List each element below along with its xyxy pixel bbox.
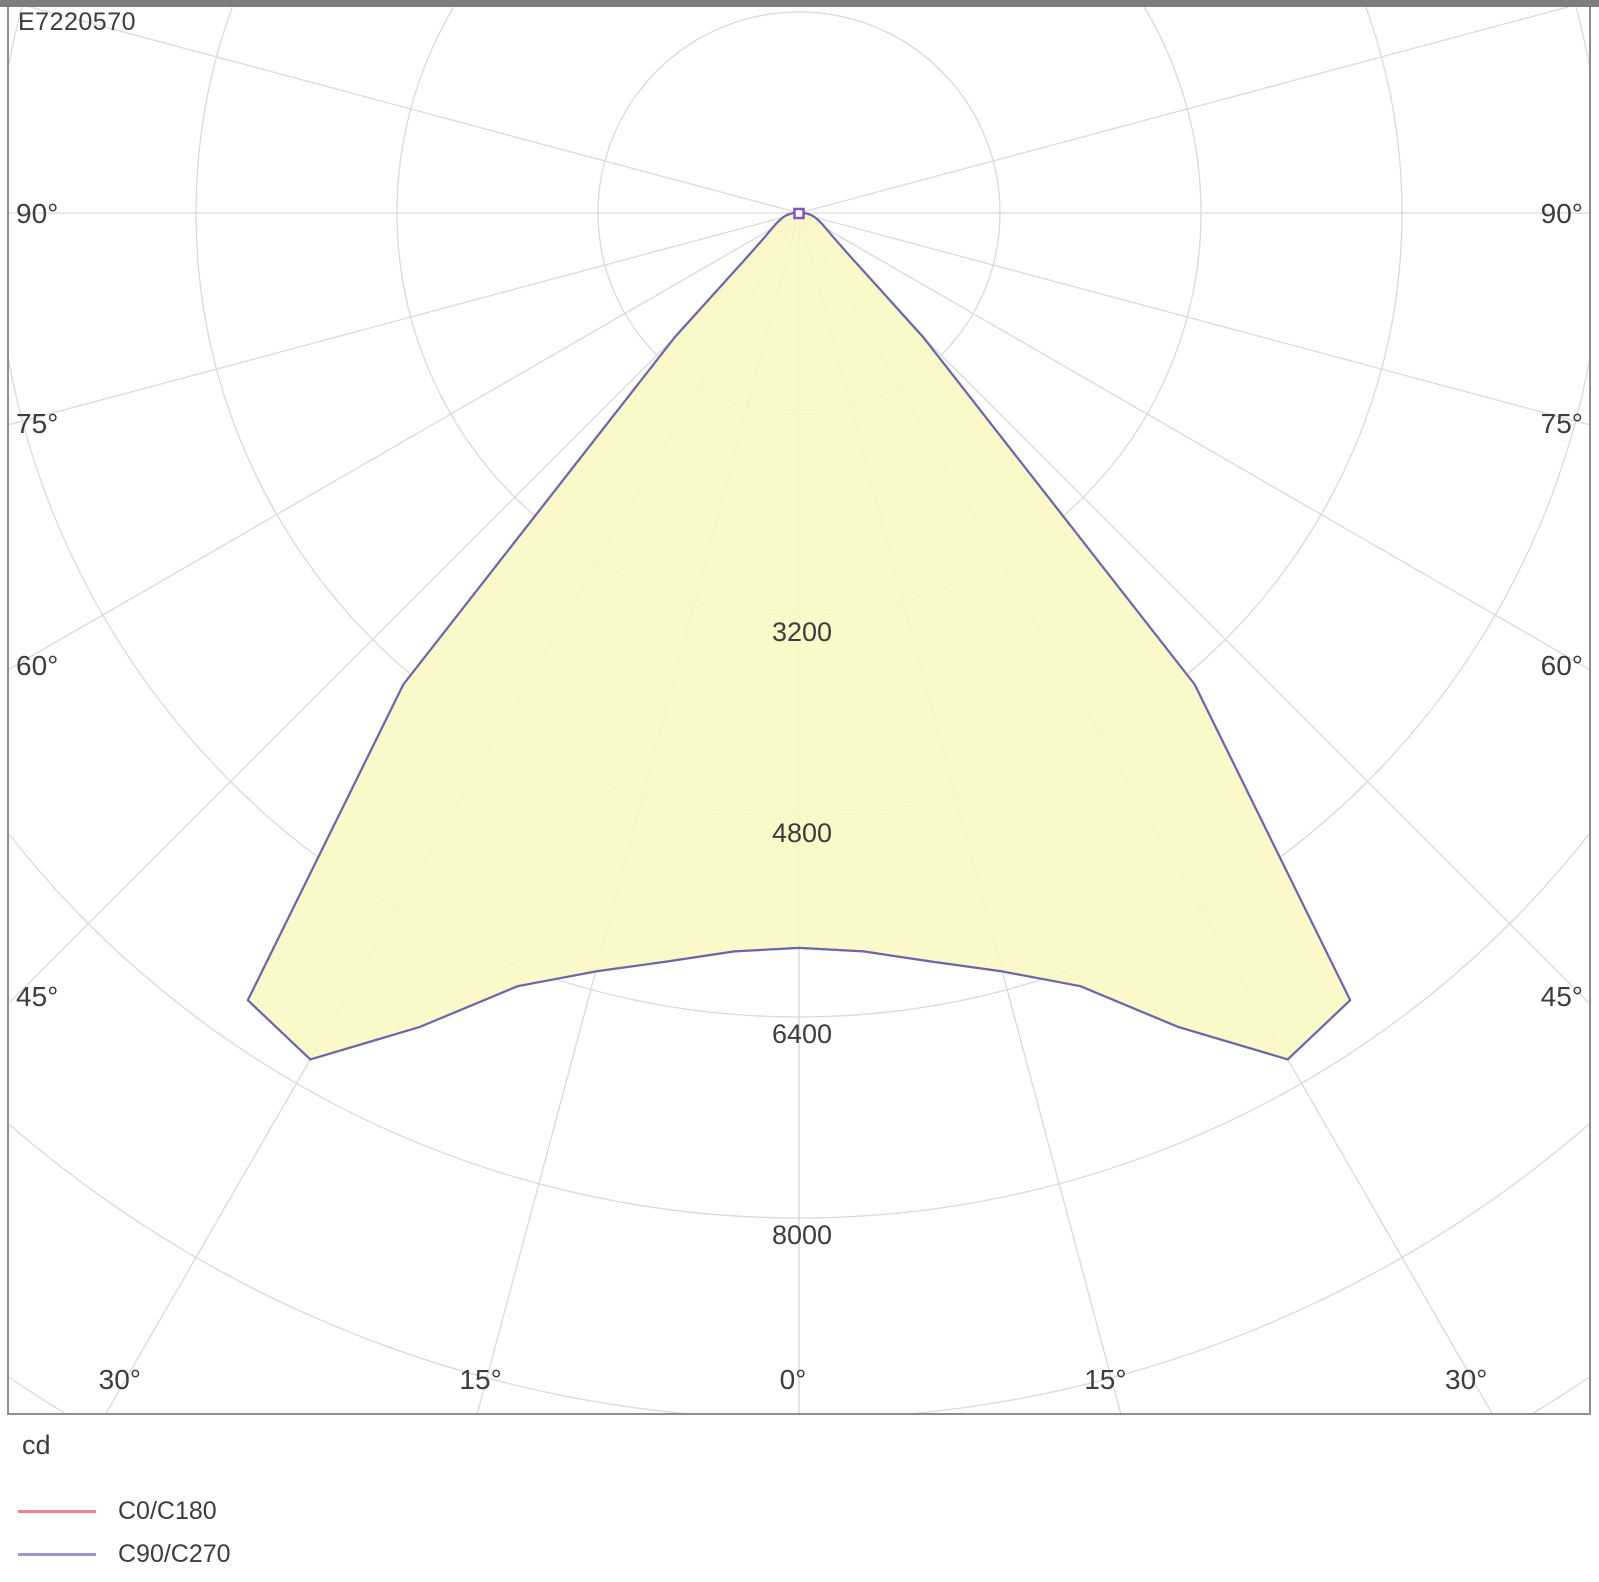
- legend-line-swatch: [18, 1510, 96, 1513]
- legend: C0/C180C90/C270: [18, 1498, 231, 1567]
- legend-label: C90/C270: [118, 1540, 231, 1569]
- top-border-bar: [0, 0, 1599, 7]
- legend-label: C0/C180: [118, 1497, 217, 1526]
- svg-text:8000: 8000: [772, 1220, 832, 1250]
- legend-item-c0-c180: C0/C180: [18, 1498, 231, 1524]
- svg-text:75°: 75°: [1541, 408, 1583, 439]
- chart-title: E7220570: [18, 8, 136, 37]
- svg-text:75°: 75°: [16, 408, 58, 439]
- plot-region: 3200480064008000: [0, 0, 1599, 1582]
- svg-text:4800: 4800: [772, 818, 832, 848]
- unit-label: cd: [22, 1430, 51, 1461]
- svg-text:30°: 30°: [99, 1364, 141, 1395]
- legend-line-swatch: [18, 1553, 96, 1556]
- svg-text:60°: 60°: [16, 650, 58, 681]
- svg-text:15°: 15°: [1084, 1364, 1126, 1395]
- svg-text:6400: 6400: [772, 1019, 832, 1049]
- origin-marker: [795, 209, 804, 218]
- polar-intensity-chart: 320048006400800090°90°75°75°60°60°45°45°…: [0, 0, 1599, 1582]
- svg-text:45°: 45°: [16, 981, 58, 1012]
- svg-text:3200: 3200: [772, 617, 832, 647]
- svg-text:15°: 15°: [459, 1364, 501, 1395]
- svg-text:30°: 30°: [1445, 1364, 1487, 1395]
- svg-text:60°: 60°: [1541, 650, 1583, 681]
- legend-item-c90-c270: C90/C270: [18, 1541, 231, 1567]
- svg-text:45°: 45°: [1541, 981, 1583, 1012]
- svg-text:90°: 90°: [16, 198, 58, 229]
- svg-text:90°: 90°: [1541, 198, 1583, 229]
- polar-chart-area: 320048006400800090°90°75°75°60°60°45°45°…: [0, 0, 1599, 1582]
- svg-text:0°: 0°: [780, 1364, 807, 1395]
- photometric-diagram-page: 320048006400800090°90°75°75°60°60°45°45°…: [0, 0, 1599, 1582]
